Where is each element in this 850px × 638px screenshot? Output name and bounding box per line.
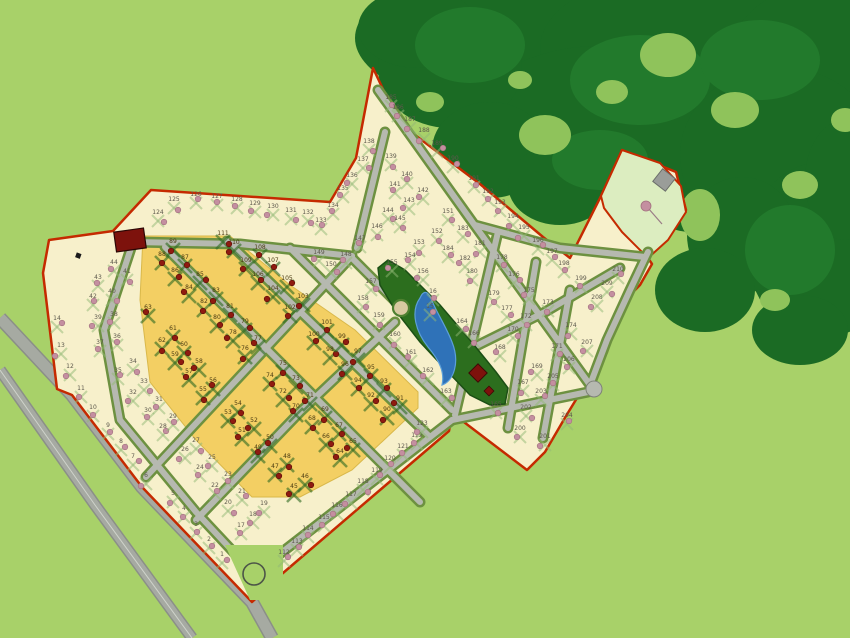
lot-number-label: 12	[66, 363, 74, 370]
park-tree-icon	[641, 201, 651, 211]
lot-number-label: 187	[404, 116, 416, 123]
red-tree-icon	[373, 398, 379, 404]
lot-number-label: 143	[403, 197, 415, 204]
lot-number-label: 74	[266, 372, 274, 379]
pink-tree-icon	[114, 339, 120, 345]
pink-tree-icon	[114, 298, 120, 304]
pink-tree-icon	[214, 199, 220, 205]
lot-number-label: 183	[457, 225, 469, 232]
red-tree-icon	[328, 441, 334, 447]
pink-tree-icon	[375, 234, 381, 240]
lot-number-label: 68	[308, 415, 316, 422]
red-tree-icon	[271, 264, 277, 270]
pink-tree-icon	[63, 373, 69, 379]
lot-number-label: 46	[301, 473, 309, 480]
site-plan-map: 1234567891011121314151617181920212223242…	[0, 0, 850, 638]
lot-number-label: 20	[224, 499, 232, 506]
lot-number-label: 141	[389, 181, 401, 188]
lot-number-label: 167	[517, 379, 529, 386]
lot-number-label: 189	[431, 140, 443, 147]
lot-number-label: 128	[231, 196, 243, 203]
lot-number-label: 193	[494, 199, 506, 206]
lot-number-label: 171	[551, 343, 563, 350]
pink-tree-icon	[180, 514, 186, 520]
pink-tree-icon	[153, 404, 159, 410]
lot-number-label: 84	[185, 284, 193, 291]
red-tree-icon	[356, 385, 362, 391]
pink-tree-icon	[95, 346, 101, 352]
red-tree-icon	[313, 338, 319, 344]
lot-number-label: 67	[335, 422, 343, 429]
pink-tree-icon	[89, 323, 95, 329]
lot-number-label: 132	[302, 209, 314, 216]
pink-tree-icon	[557, 351, 563, 357]
pink-tree-icon	[552, 254, 558, 260]
red-tree-icon	[265, 440, 271, 446]
lot-number-label: 159	[373, 312, 385, 319]
lot-number-label: 78	[229, 329, 237, 336]
pink-tree-icon	[76, 394, 82, 400]
lot-number-label: 120	[384, 455, 396, 462]
pink-tree-icon	[529, 415, 535, 421]
lot-number-label: 154	[404, 252, 416, 259]
lot-number-label: 177	[501, 305, 513, 312]
pink-tree-icon	[293, 217, 299, 223]
lot-number-label: 42	[89, 293, 97, 300]
lot-number-label: 97	[354, 348, 362, 355]
pink-tree-icon	[485, 196, 491, 202]
lot-number-label: 69	[321, 406, 329, 413]
lot-number-label: 77	[254, 335, 262, 342]
lot-number-label: 21	[238, 488, 246, 495]
pink-tree-icon	[388, 461, 394, 467]
lot-number-label: 107	[267, 257, 279, 264]
lot-number-label: 118	[357, 478, 369, 485]
lot-number-label: 179	[488, 290, 500, 297]
pink-tree-icon	[430, 309, 436, 315]
lot-number-label: 91	[396, 395, 404, 402]
lot-number-label: 10	[89, 404, 97, 411]
pink-tree-icon	[340, 257, 346, 263]
pink-tree-icon	[524, 322, 530, 328]
pink-tree-icon	[296, 544, 302, 550]
red-tree-icon	[269, 381, 275, 387]
red-tree-icon	[339, 431, 345, 437]
pink-tree-icon	[416, 194, 422, 200]
lot-number-label: 176	[508, 271, 520, 278]
red-tree-icon	[191, 365, 197, 371]
red-tree-icon	[339, 371, 345, 377]
red-tree-icon	[302, 398, 308, 404]
red-tree-icon	[321, 417, 327, 423]
lot-number-label: 127	[211, 193, 223, 200]
pink-tree-icon	[330, 511, 336, 517]
lot-number-label: 41	[123, 268, 131, 275]
lot-number-label: 89	[169, 238, 177, 245]
lot-number-label: 93	[380, 378, 388, 385]
pink-tree-icon	[256, 510, 262, 516]
lot-number-label: 43	[94, 274, 102, 281]
red-tree-icon	[286, 395, 292, 401]
pink-tree-icon	[365, 489, 371, 495]
pink-tree-icon	[52, 353, 58, 359]
red-tree-icon	[172, 335, 178, 341]
pink-tree-icon	[344, 180, 350, 186]
lot-number-label: 7	[131, 453, 135, 460]
pink-tree-icon	[565, 333, 571, 339]
red-tree-icon	[296, 303, 302, 309]
pink-tree-icon	[588, 304, 594, 310]
lot-number-label: 61	[169, 325, 177, 332]
lot-number-label: 29	[169, 413, 177, 420]
lot-number-label: 123	[416, 420, 428, 427]
red-tree-icon	[168, 248, 174, 254]
lot-number-label: 146	[371, 223, 383, 230]
lot-number-label: 95	[367, 364, 375, 371]
pink-tree-icon	[385, 265, 391, 271]
red-tree-icon	[344, 445, 350, 451]
red-tree-icon	[258, 277, 264, 283]
lot-number-label: 198	[558, 260, 570, 267]
pink-tree-icon	[194, 529, 200, 535]
lot-number-label: 186	[392, 104, 404, 111]
lot-number-label: 17	[237, 522, 245, 529]
pink-tree-icon	[167, 500, 173, 506]
lot-number-label: 119	[371, 467, 383, 474]
pink-tree-icon	[400, 205, 406, 211]
lot-number-label: 62	[158, 337, 166, 344]
park-plaza-circle	[393, 300, 409, 316]
lot-number-label: 90	[383, 406, 391, 413]
lot-number-label: 172	[520, 313, 532, 320]
pink-tree-icon	[176, 456, 182, 462]
lot-number-label: 160	[389, 331, 401, 338]
lot-number-label: 80	[213, 314, 221, 321]
pink-tree-icon	[449, 217, 455, 223]
lot-number-label: 50	[266, 434, 274, 441]
pink-tree-icon	[454, 161, 460, 167]
pink-tree-icon	[399, 450, 405, 456]
red-tree-icon	[238, 410, 244, 416]
red-tree-icon	[210, 298, 216, 304]
lot-number-label: 206	[563, 356, 575, 363]
lot-number-label: 142	[417, 187, 429, 194]
pink-tree-icon	[205, 463, 211, 469]
lot-number-label: 6	[144, 472, 148, 479]
lot-number-label: 63	[144, 304, 152, 311]
lot-number-label: 27	[192, 437, 200, 444]
pink-tree-icon	[465, 231, 471, 237]
pink-tree-icon	[394, 113, 400, 119]
lot-number-label: 166	[468, 330, 480, 337]
lot-number-label: 22	[211, 482, 219, 489]
red-tree-icon	[235, 434, 241, 440]
lot-number-label: 145	[394, 215, 406, 222]
pink-tree-icon	[506, 223, 512, 229]
lot-number-label: 184	[442, 245, 454, 252]
lot-number-label: 72	[279, 388, 287, 395]
lot-number-label: 188	[418, 127, 430, 134]
pink-tree-icon	[411, 440, 417, 446]
lot-number-label: 195	[518, 224, 530, 231]
lot-number-label: 174	[565, 322, 577, 329]
lot-number-label: 138	[363, 138, 375, 145]
pink-tree-icon	[311, 256, 317, 262]
red-tree-icon	[285, 313, 291, 319]
pink-tree-icon	[108, 266, 114, 272]
pink-tree-icon	[609, 291, 615, 297]
lot-number-label: 65	[349, 438, 357, 445]
lot-number-label: 151	[442, 208, 454, 215]
lot-number-label: 163	[440, 388, 452, 395]
lot-number-label: 147	[354, 235, 366, 242]
red-tree-icon	[324, 327, 330, 333]
red-tree-icon	[264, 296, 270, 302]
pink-tree-icon	[471, 340, 477, 346]
red-tree-icon	[230, 418, 236, 424]
red-tree-icon	[367, 373, 373, 379]
lot-number-label: 96	[341, 361, 349, 368]
pink-tree-icon	[416, 138, 422, 144]
pink-tree-icon	[390, 164, 396, 170]
lot-number-label: 87	[181, 254, 189, 261]
lot-number-label: 81	[226, 303, 234, 310]
lot-number-label: 39	[94, 314, 102, 321]
red-tree-icon	[308, 482, 314, 488]
red-tree-icon	[184, 262, 190, 268]
pink-tree-icon	[528, 369, 534, 375]
pink-tree-icon	[161, 219, 167, 225]
lot-number-label: 205	[547, 373, 559, 380]
lot-number-label: 75	[279, 360, 287, 367]
pink-tree-icon	[224, 557, 230, 563]
lot-number-label: 111	[217, 230, 229, 237]
pink-tree-icon	[370, 148, 376, 154]
lot-number-label: 185	[385, 94, 397, 101]
pink-tree-icon	[125, 398, 131, 404]
lot-number-label: 170	[507, 326, 519, 333]
lot-number-label: 5	[171, 490, 175, 497]
red-tree-icon	[159, 260, 165, 266]
red-tree-icon	[384, 385, 390, 391]
lot-number-label: 131	[285, 207, 297, 214]
pink-tree-icon	[373, 286, 379, 292]
lot-number-label: 125	[168, 196, 180, 203]
pink-tree-icon	[138, 483, 144, 489]
red-tree-icon	[310, 425, 316, 431]
pink-tree-icon	[171, 419, 177, 425]
lot-number-label: 23	[224, 471, 232, 478]
lot-number-label: 33	[140, 378, 148, 385]
red-tree-icon	[228, 312, 234, 318]
lot-number-label: 158	[357, 295, 369, 302]
lot-number-label: 47	[271, 463, 279, 470]
lot-number-label: 101	[321, 319, 333, 326]
lot-number-label: 116	[331, 502, 343, 509]
lot-number-label: 182	[459, 255, 471, 262]
cul-de-sac	[586, 381, 602, 397]
red-tree-icon	[226, 249, 232, 255]
red-tree-icon	[203, 277, 209, 283]
lot-number-label: 44	[110, 259, 118, 266]
lot-number-label: 105	[281, 275, 293, 282]
lot-number-label: 56	[209, 377, 217, 384]
lot-number-label: 106	[252, 271, 264, 278]
pink-tree-icon	[400, 225, 406, 231]
lot-number-label: 83	[212, 287, 220, 294]
lot-number-label: 28	[159, 423, 167, 430]
pink-tree-icon	[136, 458, 142, 464]
lot-number-label: 2	[207, 536, 211, 543]
lot-number-label: 52	[250, 417, 258, 424]
pink-tree-icon	[390, 187, 396, 193]
red-tree-icon	[350, 359, 356, 365]
pink-tree-icon	[449, 395, 455, 401]
lot-number-label: 94	[354, 377, 362, 384]
red-tree-icon	[224, 335, 230, 341]
pink-tree-icon	[90, 412, 96, 418]
lot-number-label: 13	[57, 342, 65, 349]
lot-number-label: 38	[110, 311, 118, 318]
site-plan: 1234567891011121314151617181920212223242…	[0, 0, 850, 638]
pink-tree-icon	[580, 348, 586, 354]
lot-number-label: 103	[297, 293, 309, 300]
pink-tree-icon	[515, 333, 521, 339]
red-tree-icon	[380, 417, 386, 423]
lot-number-label: 194	[507, 213, 519, 220]
pink-tree-icon	[404, 126, 410, 132]
lot-number-label: 53	[224, 409, 232, 416]
pink-tree-icon	[214, 488, 220, 494]
pink-tree-icon	[467, 278, 473, 284]
lot-number-label: 121	[397, 443, 409, 450]
pink-tree-icon	[175, 207, 181, 213]
lot-number-label: 100	[308, 331, 320, 338]
pink-tree-icon	[329, 208, 335, 214]
lot-number-label: 34	[129, 358, 137, 365]
pink-tree-icon	[550, 380, 556, 386]
lot-number-label: 60	[180, 341, 188, 348]
pink-tree-icon	[195, 472, 201, 478]
pink-tree-icon	[122, 444, 128, 450]
pink-tree-icon	[518, 390, 524, 396]
lot-number-label: 66	[322, 433, 330, 440]
red-tree-icon	[240, 266, 246, 272]
lot-number-label: 8	[119, 438, 123, 445]
red-tree-icon	[286, 491, 292, 497]
lot-number-label: 191	[468, 175, 480, 182]
lot-number-label: 207	[581, 339, 593, 346]
lot-number-label: 129	[249, 200, 261, 207]
lot-number-label: 98	[326, 346, 334, 353]
pink-tree-icon	[501, 262, 507, 268]
lot-number-label: 99	[338, 333, 346, 340]
lot-number-label: 115	[318, 514, 330, 521]
pink-tree-icon	[127, 279, 133, 285]
red-tree-icon	[201, 397, 207, 403]
lot-number-label: 25	[208, 454, 216, 461]
lot-number-label: 32	[129, 389, 137, 396]
lot-number-label: 104	[267, 285, 279, 292]
red-tree-icon	[185, 350, 191, 356]
lot-number-label: 51	[238, 427, 246, 434]
lot-number-label: 204	[561, 412, 573, 419]
lot-number-label: 1	[220, 551, 224, 558]
pink-tree-icon	[473, 251, 479, 257]
lot-number-label: 137	[357, 156, 369, 163]
red-tree-icon	[200, 308, 206, 314]
lot-number-label: 190	[447, 155, 459, 162]
lot-number-label: 155	[386, 259, 398, 266]
pink-tree-icon	[363, 304, 369, 310]
red-tree-icon	[245, 425, 251, 431]
lot-number-label: 92	[367, 392, 375, 399]
red-tree-icon	[297, 383, 303, 389]
pink-tree-icon	[144, 414, 150, 420]
pink-tree-icon	[436, 238, 442, 244]
pink-tree-icon	[391, 342, 397, 348]
lot-number-label: 196	[532, 237, 544, 244]
lot-number-label: 192	[482, 188, 494, 195]
lot-number-label: 64	[336, 448, 344, 455]
pink-tree-icon	[566, 418, 572, 424]
red-tree-icon	[333, 454, 339, 460]
lot-number-label: 54	[234, 400, 242, 407]
pink-tree-icon	[448, 252, 454, 258]
lot-number-label: 9	[106, 422, 110, 429]
lot-number-label: 37	[96, 339, 104, 346]
pink-tree-icon	[107, 429, 113, 435]
pink-tree-icon	[414, 429, 420, 435]
lot-number-label: 11	[77, 385, 85, 392]
pink-tree-icon	[577, 283, 583, 289]
lot-number-label: 16	[429, 288, 437, 295]
pink-tree-icon	[147, 388, 153, 394]
lot-number-label: 4	[182, 505, 186, 512]
pink-tree-icon	[94, 280, 100, 286]
pink-tree-icon	[237, 530, 243, 536]
pink-tree-icon	[495, 208, 501, 214]
lot-number-label: 156	[417, 268, 429, 275]
red-tree-icon	[247, 325, 253, 331]
lot-number-label: 19	[260, 500, 268, 507]
pink-tree-icon	[473, 182, 479, 188]
pink-tree-icon	[544, 309, 550, 315]
lot-number-label: 71	[306, 392, 314, 399]
lot-number-label: 108	[254, 244, 266, 251]
pink-tree-icon	[342, 501, 348, 507]
pink-tree-icon	[431, 295, 437, 301]
pink-tree-icon	[564, 364, 570, 370]
lot-number-label: 200	[514, 425, 526, 432]
lot-number-label: 164	[456, 318, 468, 325]
lot-number-label: 149	[313, 249, 325, 256]
lot-number-label: 102	[284, 304, 296, 311]
lot-number-label: 59	[171, 351, 179, 358]
lot-number-label: 79	[241, 318, 249, 325]
red-tree-icon	[280, 370, 286, 376]
pink-tree-icon	[248, 208, 254, 214]
lot-number-label: 117	[345, 491, 357, 498]
pink-tree-icon	[209, 543, 215, 549]
lot-number-label: 88	[158, 251, 166, 258]
lot-number-label: 114	[302, 525, 314, 532]
lot-number-label: 24	[196, 464, 204, 471]
lot-number-label: 175	[523, 287, 535, 294]
lot-number-label: 162	[422, 367, 434, 374]
lot-number-label: 48	[283, 453, 291, 460]
lot-number-label: 109	[240, 257, 252, 264]
